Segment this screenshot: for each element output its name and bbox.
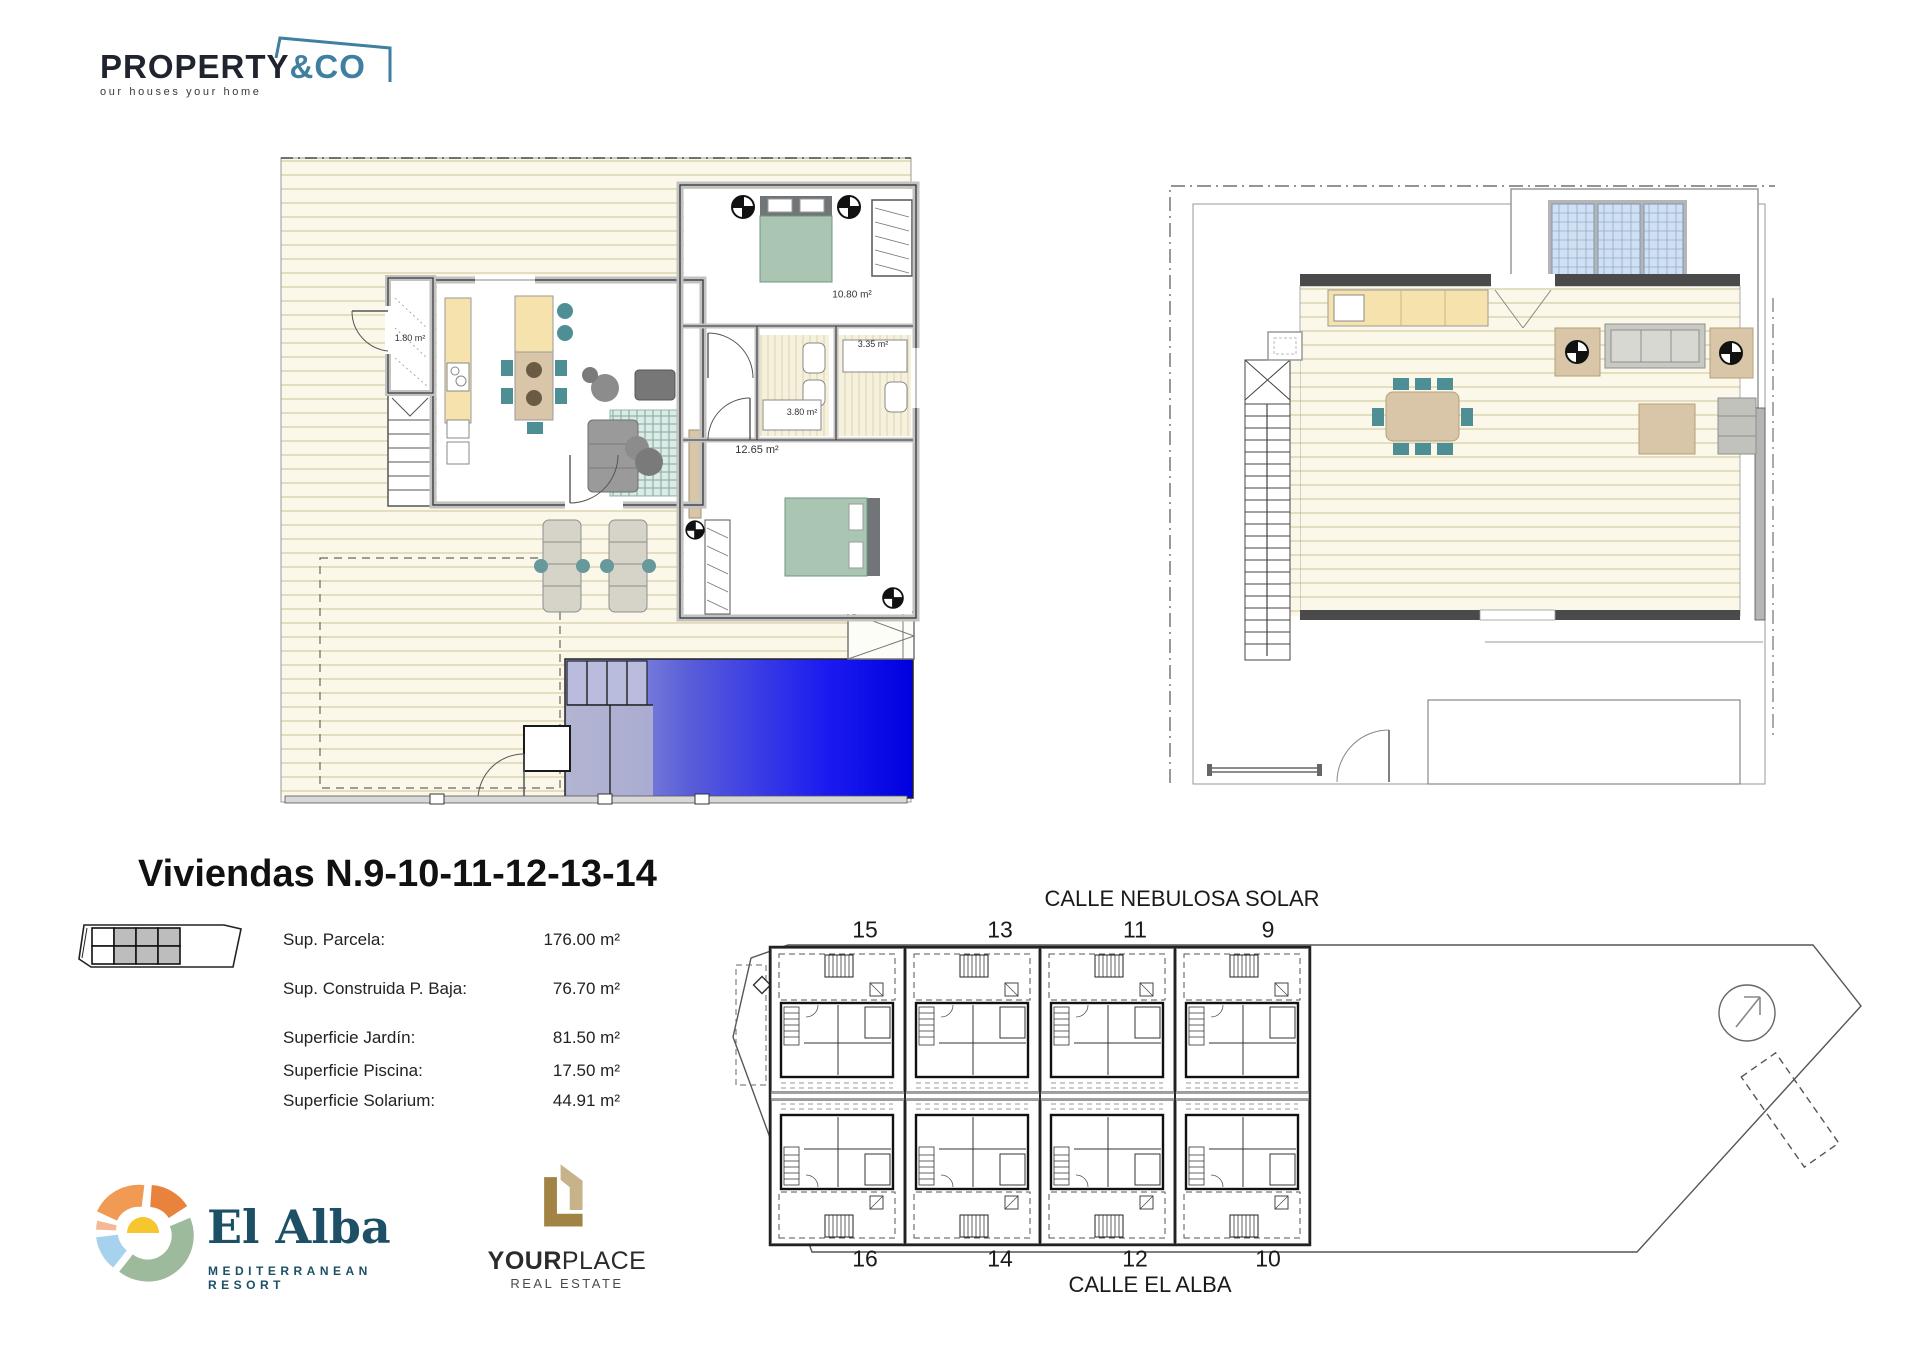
area-label-bath-large: 3.80 m²	[787, 407, 818, 417]
el-alba-emblem-icon	[95, 1178, 197, 1286]
plot-number-11: 11	[1123, 917, 1147, 944]
stat-row: Superficie Piscina: 17.50 m²	[283, 1061, 620, 1081]
stat-value: 81.50 m²	[553, 1028, 620, 1048]
bed-icon	[785, 498, 880, 576]
roof-outline-icon	[268, 34, 398, 84]
your-place-name-light: PLACE	[562, 1247, 646, 1275]
property-co-logo: PROPERTY&CO our houses your home	[100, 48, 430, 108]
brand-primary: PROPERTY	[100, 48, 290, 85]
stat-label: Superficie Solarium:	[283, 1091, 435, 1111]
area-label-bedroom-main: 12.65 m²	[735, 444, 778, 456]
stat-label: Superficie Jardín:	[283, 1028, 415, 1048]
stat-value: 17.50 m²	[553, 1061, 620, 1081]
plot-number-9: 9	[1262, 917, 1275, 944]
stat-row: Sup. Construida P. Baja: 76.70 m²	[283, 979, 620, 999]
plot-number-14: 14	[987, 1246, 1013, 1273]
your-place-name: YOURPLACE	[487, 1247, 647, 1276]
your-place-logo: YOURPLACE REAL ESTATE	[487, 1158, 647, 1291]
plot-number-13: 13	[987, 917, 1013, 944]
plot-locator-icon	[74, 920, 246, 972]
street-name-top: CALLE NEBULOSA SOLAR	[1044, 886, 1319, 912]
stat-label: Sup. Construida P. Baja:	[283, 979, 467, 999]
ground-floor-plan	[265, 148, 920, 810]
area-label-bedroom-top: 10.80 m²	[832, 290, 871, 301]
stat-label: Sup. Parcela:	[283, 930, 385, 950]
stat-label: Superficie Piscina:	[283, 1061, 423, 1081]
flyer-page: PROPERTY&CO our houses your home	[0, 0, 1920, 1357]
street-name-bottom: CALLE EL ALBA	[1068, 1272, 1231, 1298]
bed-icon	[760, 196, 832, 282]
your-place-subtitle: REAL ESTATE	[487, 1276, 647, 1291]
site-plan	[700, 885, 1880, 1305]
brand-tagline: our houses your home	[100, 86, 430, 98]
area-label-storage: 1.80 m²	[395, 333, 426, 343]
stat-row: Sup. Parcela: 176.00 m²	[283, 930, 620, 950]
stat-value: 176.00 m²	[543, 930, 620, 950]
stat-row: Superficie Solarium: 44.91 m²	[283, 1091, 620, 1111]
area-label-bath-small: 3.35 m²	[858, 339, 889, 349]
plot-number-15: 15	[852, 917, 878, 944]
el-alba-subtitle: MEDITERRANEAN RESORT	[208, 1264, 415, 1292]
plot-number-16: 16	[852, 1246, 878, 1273]
page-title: Viviendas N.9-10-11-12-13-14	[138, 853, 657, 896]
plot-number-10: 10	[1255, 1246, 1281, 1273]
stat-value: 44.91 m²	[553, 1091, 620, 1111]
stat-value: 76.70 m²	[553, 979, 620, 999]
plot-number-12: 12	[1122, 1246, 1148, 1273]
your-place-house-icon	[535, 1158, 599, 1242]
your-place-name-bold: YOUR	[488, 1247, 562, 1275]
solarium-plan	[1155, 178, 1785, 803]
stat-row: Superficie Jardín: 81.50 m²	[283, 1028, 620, 1048]
el-alba-name: El Alba	[207, 1200, 391, 1254]
